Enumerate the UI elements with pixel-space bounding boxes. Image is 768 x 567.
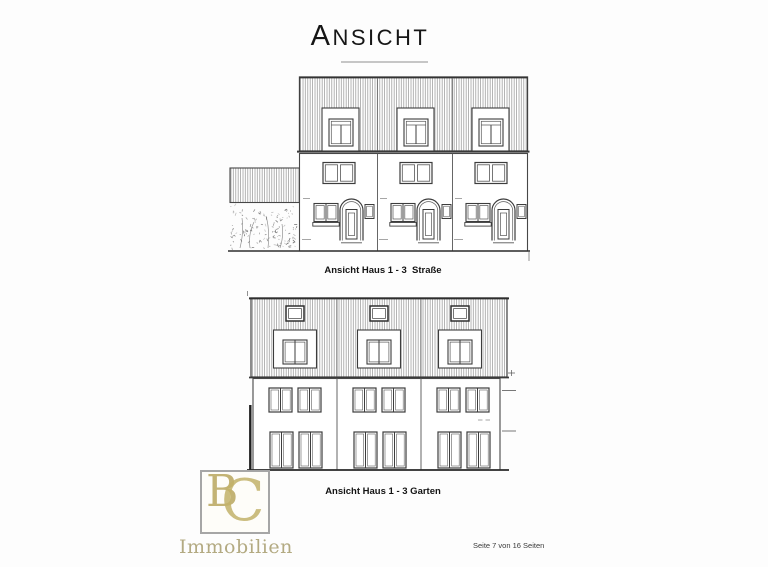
page-number: Seite 7 von 16 Seiten <box>473 541 544 550</box>
garden-facade <box>253 378 500 470</box>
garden-elevation-caption: Ansicht Haus 1 - 3 Garten <box>251 486 515 497</box>
garage-annex <box>230 168 300 203</box>
roof-dormers <box>274 330 482 368</box>
street-facade <box>300 154 528 252</box>
ground-line <box>228 251 530 261</box>
tree-sketch <box>230 204 297 250</box>
logo-wordmark: Immobilien <box>179 536 299 558</box>
company-logo: B C <box>200 470 270 534</box>
dimension-marks <box>502 370 516 431</box>
garden-elevation-drawing <box>243 289 521 481</box>
title-underline <box>341 61 428 63</box>
logo-monogram-c: C <box>221 468 265 534</box>
page-title: ANSICHT <box>0 20 740 53</box>
document-page: ANSICHT <box>0 0 768 567</box>
roof-dormers <box>322 108 509 151</box>
street-elevation-caption: Ansicht Haus 1 - 3 Straße <box>251 265 515 276</box>
street-elevation-drawing <box>226 74 532 266</box>
